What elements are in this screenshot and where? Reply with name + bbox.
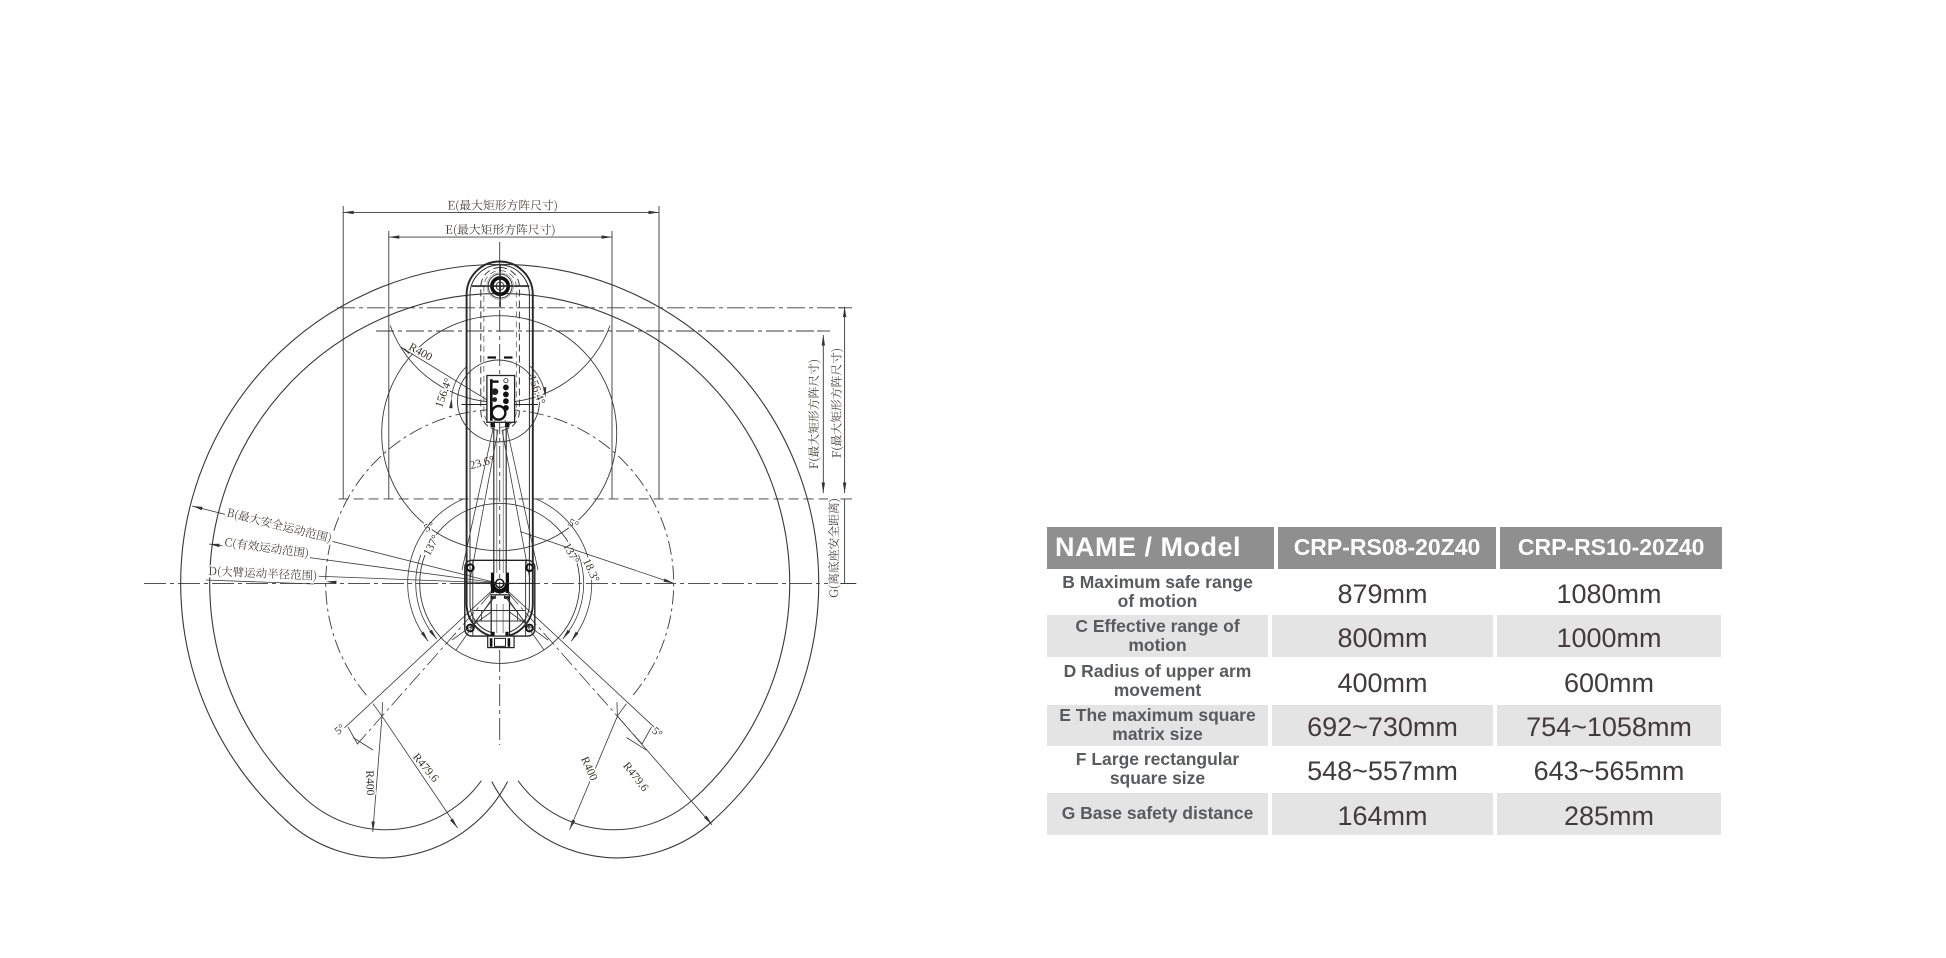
svg-text:R400: R400 [407, 341, 435, 364]
svg-text:18.3°: 18.3° [580, 557, 601, 585]
svg-text:5°: 5° [422, 520, 436, 535]
svg-text:5°: 5° [566, 517, 580, 532]
svg-text:137°: 137° [560, 541, 581, 566]
svg-text:5°: 5° [332, 722, 347, 738]
svg-text:R400: R400 [578, 755, 599, 783]
svg-text:R400: R400 [363, 770, 376, 796]
svg-text:R479.6: R479.6 [620, 760, 650, 794]
svg-text:137°: 137° [421, 533, 442, 558]
